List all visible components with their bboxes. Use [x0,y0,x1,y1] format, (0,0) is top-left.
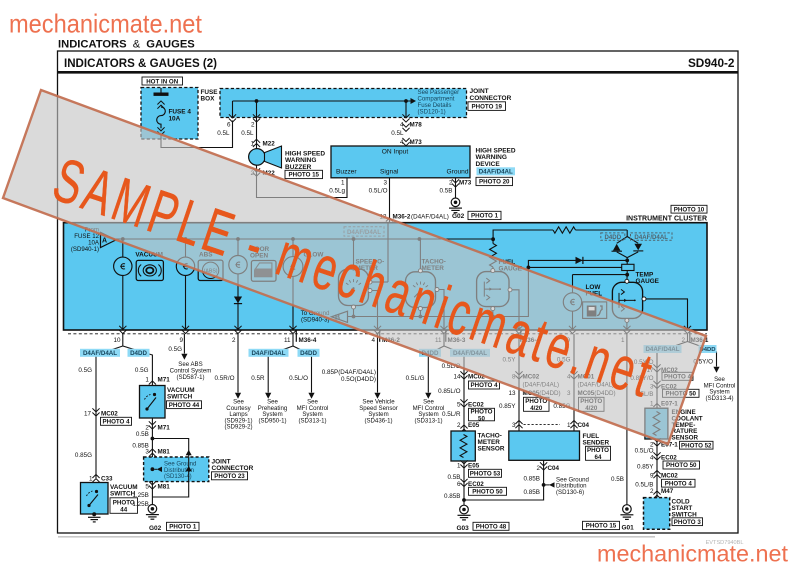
svg-text:0.5Lg: 0.5Lg [329,188,345,195]
svg-text:0.85Y: 0.85Y [637,463,654,470]
svg-text:D4DD: D4DD [300,350,317,357]
svg-text:44: 44 [120,506,127,513]
svg-text:SENDER: SENDER [583,440,610,447]
svg-text:1: 1 [567,422,571,429]
svg-text:EC02: EC02 [468,481,484,488]
svg-text:13: 13 [508,390,516,397]
svg-text:M71: M71 [158,424,171,431]
svg-text:M81: M81 [158,448,171,455]
svg-text:PHOTO 1: PHOTO 1 [471,213,499,220]
svg-text:PHOTO 19: PHOTO 19 [472,103,503,110]
svg-text:PHOTO 3: PHOTO 3 [674,519,702,526]
svg-text:CONNECTOR: CONNECTOR [470,95,512,102]
svg-text:DEVICE: DEVICE [476,161,501,168]
svg-text:2: 2 [650,488,654,495]
svg-text:PHOTO 10: PHOTO 10 [674,206,705,213]
svg-text:0.5L: 0.5L [217,130,230,137]
svg-text:BUZZER: BUZZER [285,164,312,171]
svg-text:See Ground: See Ground [164,462,196,468]
svg-text:2: 2 [251,122,255,129]
svg-text:0.5B: 0.5B [440,188,453,195]
svg-text:5: 5 [457,401,461,408]
svg-text:SWITCH: SWITCH [167,394,193,401]
svg-text:(SD313-1): (SD313-1) [298,417,326,424]
svg-text:M47: M47 [661,488,674,495]
svg-text:(SD587-1): (SD587-1) [176,374,204,381]
svg-text:D4AF/D4AL: D4AF/D4AL [479,169,513,176]
svg-text:PHOTO 15: PHOTO 15 [289,172,320,179]
svg-text:INDICATORS & GAUGES: INDICATORS & GAUGES [58,39,195,51]
svg-text:EC02: EC02 [468,401,484,408]
svg-text:Signal: Signal [380,168,399,175]
svg-text:0.85Y: 0.85Y [499,403,516,410]
svg-text:(SD130-4): (SD130-4) [164,474,192,480]
svg-text:Ground: Ground [447,168,469,175]
svg-text:E05: E05 [468,462,480,469]
svg-text:0.5B: 0.5B [611,476,624,483]
svg-text:mechanicmate.net: mechanicmate.net [9,9,203,39]
svg-text:INSTRUMENT CLUSTER: INSTRUMENT CLUSTER [626,216,707,223]
svg-text:0.5L/R: 0.5L/R [442,411,461,418]
svg-text:PHOTO 23: PHOTO 23 [214,473,245,480]
svg-text:HOT IN ON: HOT IN ON [146,78,178,85]
svg-text:M73: M73 [410,139,423,146]
svg-text:G03: G03 [457,525,470,532]
svg-text:G02: G02 [149,525,162,532]
svg-text:(SD120-1): (SD120-1) [418,109,446,116]
svg-text:SENSOR: SENSOR [478,445,505,452]
svg-text:PHOTO: PHOTO [587,447,609,454]
svg-text:5: 5 [145,483,149,490]
svg-text:6: 6 [457,481,461,488]
svg-text:1: 1 [145,376,149,383]
svg-text:1: 1 [341,179,345,186]
svg-text:M36-2: M36-2 [393,214,411,221]
svg-text:MC02: MC02 [661,472,678,479]
svg-text:2: 2 [232,337,236,344]
svg-text:A: A [102,238,107,245]
svg-text:0.5G: 0.5G [168,346,182,353]
svg-text:1: 1 [89,475,93,482]
svg-text:Buzzer: Buzzer [336,168,357,175]
svg-text:GAUGE: GAUGE [636,278,660,285]
svg-text:4/20: 4/20 [530,405,543,412]
svg-text:M36-4: M36-4 [299,337,317,344]
svg-text:D4AF/D4AL: D4AF/D4AL [634,234,668,241]
svg-text:C04: C04 [578,422,590,429]
svg-text:M22: M22 [263,140,276,147]
svg-text:(SD929-2): (SD929-2) [224,424,252,431]
svg-text:PHOTO 4: PHOTO 4 [470,382,498,389]
svg-text:M78: M78 [410,122,423,129]
svg-text:6: 6 [227,122,231,129]
svg-text:1: 1 [250,140,254,147]
svg-text:M71: M71 [158,376,171,383]
svg-text:(SD950-1): (SD950-1) [258,417,286,424]
svg-text:PHOTO 4: PHOTO 4 [665,480,693,487]
svg-text:PHOTO 1: PHOTO 1 [169,524,197,531]
svg-text:0.5L/G: 0.5L/G [406,375,425,382]
svg-text:MC02: MC02 [101,410,118,417]
svg-text:4: 4 [371,337,375,344]
svg-text:M73: M73 [459,179,472,186]
svg-text:9: 9 [650,472,654,479]
svg-text:(SD313-4): (SD313-4) [705,395,733,402]
svg-text:11: 11 [284,337,291,344]
svg-text:PHOTO 53: PHOTO 53 [470,471,501,478]
svg-text:0.85B: 0.85B [444,493,460,500]
svg-text:D4AF/D4AL: D4AF/D4AL [83,350,117,357]
svg-text:PHOTO 50: PHOTO 50 [666,462,697,469]
svg-text:0.5L/O: 0.5L/O [369,188,388,195]
svg-text:3: 3 [145,448,149,455]
svg-text:0.5G: 0.5G [78,367,92,374]
svg-text:0.5G: 0.5G [135,367,149,374]
svg-text:PHOTO 4: PHOTO 4 [102,419,130,426]
svg-text:BOX: BOX [201,96,216,103]
svg-text:EC02: EC02 [661,454,677,461]
svg-text:(SD436-1): (SD436-1) [364,417,392,424]
svg-text:PHOTO: PHOTO [471,408,493,415]
svg-text:0.5L: 0.5L [241,130,254,137]
svg-text:FUSE 4: FUSE 4 [169,109,192,116]
svg-text:0.85P(D4AF/D4AL): 0.85P(D4AF/D4AL) [322,369,376,376]
svg-text:0.5L/O: 0.5L/O [289,375,308,382]
svg-text:SD940-2: SD940-2 [688,56,735,70]
svg-text:mechanicmate.net: mechanicmate.net [597,541,788,565]
svg-text:3: 3 [512,422,516,429]
svg-text:(SD940-1): (SD940-1) [71,246,99,253]
svg-text:2: 2 [536,465,540,472]
svg-text:1.25B: 1.25B [132,492,148,499]
svg-text:PHOTO 48: PHOTO 48 [476,524,507,531]
svg-text:0.5O(D4DD): 0.5O(D4DD) [341,376,376,383]
svg-text:14: 14 [453,373,461,380]
svg-text:3: 3 [383,179,387,186]
svg-text:1: 1 [457,462,461,469]
svg-text:10A: 10A [169,116,181,123]
svg-text:C04: C04 [548,465,560,472]
svg-text:INDICATORS & GAUGES (2): INDICATORS & GAUGES (2) [64,56,217,70]
svg-text:D4DD: D4DD [130,350,147,357]
svg-text:64: 64 [595,454,602,461]
svg-text:PHOTO 20: PHOTO 20 [479,179,510,186]
svg-text:(D4AF/D4AL): (D4AF/D4AL) [411,214,449,221]
svg-text:0.85B: 0.85B [524,489,540,496]
svg-text:(SD313-1): (SD313-1) [414,417,442,424]
svg-text:(SD130-6): (SD130-6) [556,489,584,496]
svg-text:PHOTO 44: PHOTO 44 [169,402,200,409]
svg-text:0.85L/O: 0.85L/O [438,388,461,395]
svg-text:M81: M81 [158,483,171,490]
svg-text:4: 4 [650,454,654,461]
svg-text:D4AF/D4AL: D4AF/D4AL [251,350,285,357]
svg-text:PHOTO 50: PHOTO 50 [472,489,503,496]
svg-text:0.85G: 0.85G [75,452,92,459]
svg-text:G01: G01 [622,525,635,532]
svg-text:17: 17 [84,410,92,417]
svg-text:1.25B: 1.25B [132,501,148,508]
svg-text:D4DD: D4DD [605,234,622,241]
svg-text:0.5B: 0.5B [448,474,461,481]
svg-text:0.85B: 0.85B [524,475,540,482]
svg-text:2: 2 [449,179,453,186]
svg-text:0.5R/O: 0.5R/O [215,375,235,382]
svg-text:E05: E05 [468,422,480,429]
svg-text:PHOTO 52: PHOTO 52 [681,442,712,449]
svg-text:0.5R: 0.5R [251,375,265,382]
svg-text:C33: C33 [101,475,113,482]
svg-text:CONNECTOR: CONNECTOR [212,465,254,472]
svg-text:0.5L: 0.5L [391,130,404,137]
svg-text:G02: G02 [452,213,465,220]
svg-text:10: 10 [113,337,121,344]
svg-text:0.5B: 0.5B [136,431,149,438]
svg-text:2: 2 [457,422,461,429]
svg-text:9: 9 [179,337,183,344]
svg-text:PHOTO 15: PHOTO 15 [586,523,617,530]
svg-text:0.5L/O: 0.5L/O [635,447,654,454]
svg-text:ON Input: ON Input [382,149,409,156]
